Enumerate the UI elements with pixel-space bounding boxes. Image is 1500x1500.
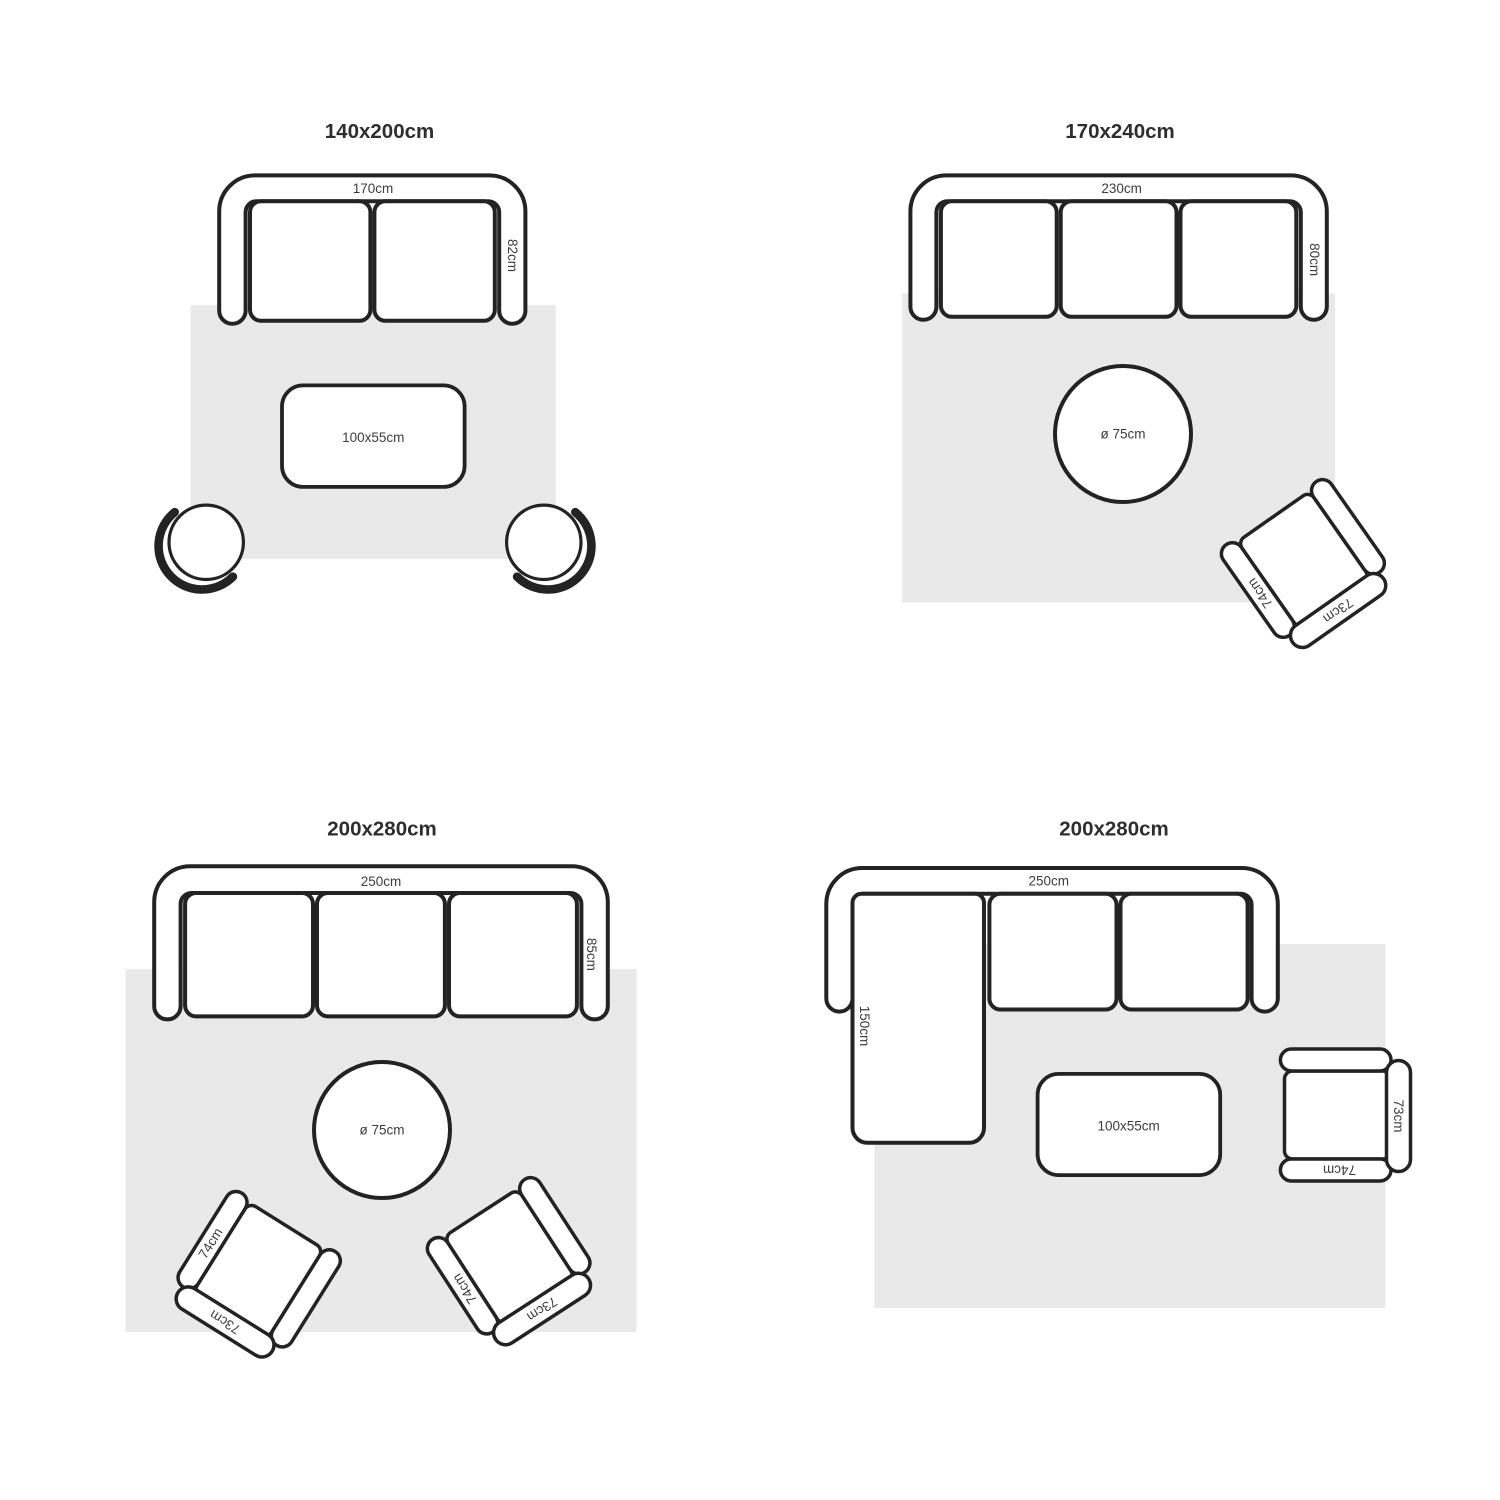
svg-text:250cm: 250cm [1029,874,1070,889]
svg-text:ø 75cm: ø 75cm [1100,427,1145,442]
svg-text:85cm: 85cm [584,938,599,971]
svg-text:170cm: 170cm [353,181,394,196]
svg-text:82cm: 82cm [505,239,520,272]
svg-text:250cm: 250cm [361,874,402,889]
svg-text:ø 75cm: ø 75cm [359,1123,404,1138]
svg-text:100x55cm: 100x55cm [342,430,404,445]
svg-text:230cm: 230cm [1101,181,1142,196]
svg-text:74cm: 74cm [1323,1163,1356,1178]
svg-text:200x280cm: 200x280cm [1059,818,1168,841]
svg-text:100x55cm: 100x55cm [1097,1119,1159,1134]
svg-text:80cm: 80cm [1307,243,1322,276]
svg-text:150cm: 150cm [857,1006,872,1047]
svg-text:140x200cm: 140x200cm [325,120,434,143]
svg-text:200x280cm: 200x280cm [327,818,436,841]
svg-text:170x240cm: 170x240cm [1065,120,1174,143]
svg-text:73cm: 73cm [1391,1099,1406,1132]
